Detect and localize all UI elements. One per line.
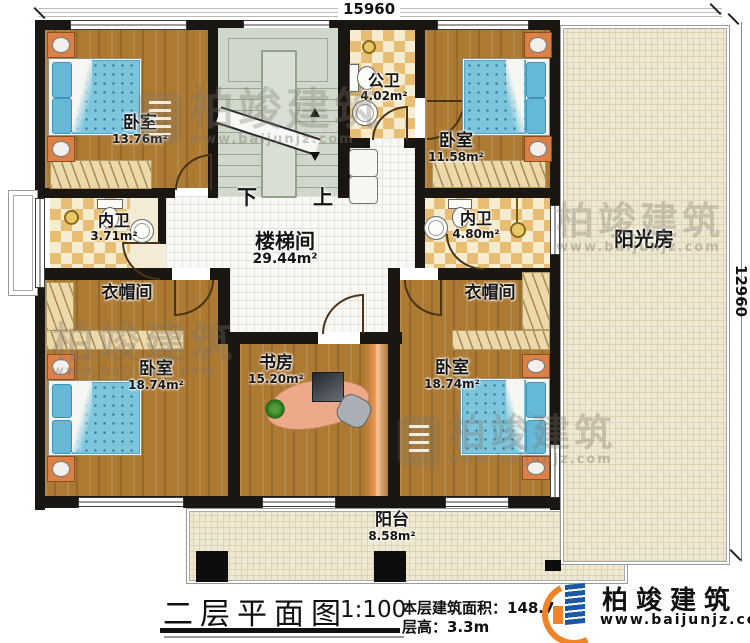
watermark: 柏竣建筑 www.baijunjz.com xyxy=(138,88,382,147)
nightstand-icon xyxy=(47,32,75,58)
watermark-text: 柏竣建筑 xyxy=(52,318,236,367)
balcony-column xyxy=(196,551,228,582)
room-label-stair-hall: 楼梯间 29.44m² xyxy=(235,230,335,267)
bed-sheet xyxy=(506,60,524,132)
watermark-url: www.baijunjz.com xyxy=(448,452,616,467)
title-underline-thin xyxy=(164,636,404,638)
wall xyxy=(45,188,175,198)
window xyxy=(78,497,184,508)
bed-pillow xyxy=(52,98,72,134)
watermark: 柏竣建筑 www.baijunjz.com xyxy=(52,322,236,379)
page-title: 二层平面图 xyxy=(163,589,348,633)
room-label-balcony: 阳台 8.58m² xyxy=(352,511,432,543)
logo-tower-orange xyxy=(553,606,563,624)
room-area: 8.58m² xyxy=(352,530,432,543)
drain-icon xyxy=(64,210,79,225)
room-name: 书房 xyxy=(259,353,293,373)
room-label-bedroom-br: 卧室 18.74m² xyxy=(412,359,492,391)
room-area: 11.58m² xyxy=(416,151,496,164)
watermark-building-icon xyxy=(138,92,182,144)
wall xyxy=(210,268,230,280)
shower-head-icon xyxy=(510,222,526,238)
watermark-text: 柏竣建筑 xyxy=(448,411,616,455)
room-area: 18.74m² xyxy=(412,378,492,391)
room-name: 楼梯间 xyxy=(255,229,315,253)
dimension-top-label: 15960 xyxy=(338,0,400,18)
room-name: 阳台 xyxy=(375,510,409,530)
room-name: 衣帽间 xyxy=(465,283,516,303)
bed-pillow xyxy=(52,62,72,98)
room-name: 卧室 xyxy=(435,358,469,378)
balcony-column xyxy=(374,551,406,582)
floor-height-info: 层高：3.3m xyxy=(402,616,489,637)
room-area: 15.20m² xyxy=(236,373,316,386)
study-wall-glow xyxy=(364,344,388,496)
window xyxy=(445,497,509,508)
bed-pillow xyxy=(52,420,72,454)
watermark-building-icon xyxy=(398,416,440,466)
bed-pillow xyxy=(526,62,546,98)
dimension-tick xyxy=(729,549,741,561)
floor-plan-canvas: 卧室 13.76m² 公卫 4.02m² 卧室 11.58m² 内卫 3.71m… xyxy=(0,0,750,643)
window xyxy=(35,198,45,288)
logo-building-icon xyxy=(541,576,599,640)
bed-pillow xyxy=(526,98,546,134)
wall xyxy=(415,188,560,198)
nightstand-icon xyxy=(522,354,550,378)
stair-hall-floor-b xyxy=(230,268,388,332)
watermark-text: 柏竣建筑 xyxy=(190,84,382,135)
balcony-pier xyxy=(545,560,561,571)
dimension-tick xyxy=(727,13,739,25)
watermark-url: www.baijunjz.com xyxy=(556,240,724,255)
drain-icon xyxy=(362,40,376,54)
stair-up-label: 上 xyxy=(308,186,338,208)
room-area: 29.44m² xyxy=(235,252,335,267)
window xyxy=(437,20,529,30)
wall xyxy=(158,198,166,244)
room-label-bath-right: 内卫 4.80m² xyxy=(440,210,512,241)
watermark-text: 柏竣建筑 xyxy=(556,199,724,243)
room-area: 18.74m² xyxy=(116,379,196,392)
watermark-block: 柏竣建筑 www.baijunjz.com xyxy=(190,88,382,147)
window xyxy=(70,20,187,30)
dimension-right-label: 12960 xyxy=(732,252,750,330)
logo-tower-blue xyxy=(565,583,585,625)
logo-url: www.baijunjz.com xyxy=(600,612,750,628)
nightstand-icon xyxy=(47,136,75,162)
wall xyxy=(360,332,402,344)
room-label-study: 书房 15.20m² xyxy=(236,354,316,386)
room-name: 衣帽间 xyxy=(102,283,153,303)
rug-icon xyxy=(432,160,546,188)
watermark-block: 柏竣建筑 www.baijunjz.com xyxy=(52,322,236,379)
scale-label: 1:100 xyxy=(340,597,406,623)
washer-icon xyxy=(349,176,378,204)
room-name: 卧室 xyxy=(439,131,473,151)
rug-icon xyxy=(50,160,152,189)
washer-icon xyxy=(349,149,378,177)
stair-down-label: 下 xyxy=(232,186,262,208)
sliding-door xyxy=(262,497,336,508)
bed-sheet xyxy=(72,382,92,452)
room-label-bath-left: 内卫 3.71m² xyxy=(78,212,150,243)
room-name: 内卫 xyxy=(460,209,492,228)
floor-area-info: 本层建筑面积：148.7 xyxy=(402,597,554,618)
room-area: 4.80m² xyxy=(440,228,512,241)
watermark-block: 柏竣建筑 www.baijunjz.com xyxy=(556,202,724,255)
watermark: 柏竣建筑 www.baijunjz.com xyxy=(556,202,724,255)
bed-pillow xyxy=(52,384,72,418)
room-area: 3.71m² xyxy=(78,230,150,243)
watermark-block: 柏竣建筑 www.baijunjz.com xyxy=(448,414,616,467)
stair-break-arrow-down xyxy=(310,152,320,161)
nightstand-icon xyxy=(524,136,552,162)
room-label-cloak-right: 衣帽间 xyxy=(445,284,535,303)
stair-down-text: 下 xyxy=(237,185,257,209)
stair-up-text: 上 xyxy=(313,185,333,209)
bay-window-inner xyxy=(13,195,33,291)
watermark-url: www.baijunjz.com xyxy=(52,364,236,379)
computer-monitor-icon xyxy=(312,372,344,402)
shower-rod-icon xyxy=(516,198,518,224)
watermark: 柏竣建筑 www.baijunjz.com xyxy=(398,414,616,467)
nightstand-icon xyxy=(524,32,552,58)
room-label-bedroom-tr: 卧室 11.58m² xyxy=(416,132,496,164)
bed-sheet xyxy=(72,60,92,132)
nightstand-icon xyxy=(47,456,75,482)
room-label-cloak-left: 衣帽间 xyxy=(82,284,172,303)
room-name: 内卫 xyxy=(98,211,130,230)
sunroom-floor xyxy=(560,25,730,565)
watermark-url: www.baijunjz.com xyxy=(190,132,382,147)
plant-icon xyxy=(264,398,286,420)
wardrobe-icon xyxy=(452,330,550,350)
